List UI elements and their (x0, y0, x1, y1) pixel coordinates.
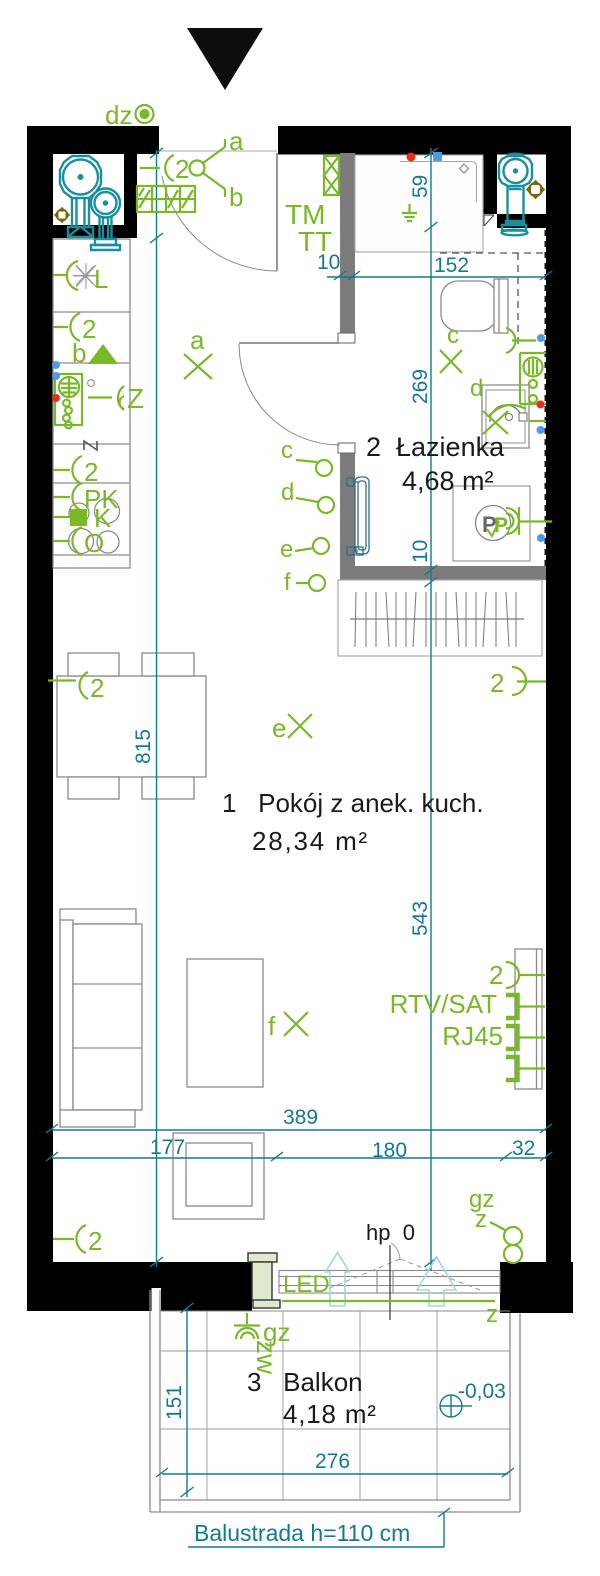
svg-text:180: 180 (372, 1139, 407, 1162)
svg-text:2: 2 (84, 457, 98, 487)
svg-text:543: 543 (409, 901, 432, 936)
svg-text:2: 2 (88, 1226, 102, 1256)
svg-text:2: 2 (489, 960, 503, 990)
svg-text:Z: Z (127, 383, 144, 414)
svg-text:32: 32 (512, 1137, 535, 1160)
svg-text:Balustrada h=110 cm: Balustrada h=110 cm (194, 1520, 410, 1546)
svg-text:RJ45: RJ45 (442, 1021, 503, 1051)
svg-text:d: d (470, 375, 483, 402)
svg-text:177: 177 (150, 1136, 185, 1159)
svg-text:f: f (268, 1011, 276, 1041)
svg-text:2 Łazienka: 2 Łazienka (366, 432, 505, 462)
svg-text:59: 59 (409, 175, 432, 198)
svg-text:hp 0: hp 0 (366, 1220, 415, 1245)
svg-text:151: 151 (163, 1385, 186, 1420)
svg-text:269: 269 (409, 369, 432, 404)
svg-text:f: f (284, 569, 291, 596)
svg-text:z: z (486, 1301, 498, 1328)
svg-text:O: O (84, 528, 104, 558)
svg-text:10: 10 (409, 540, 432, 563)
svg-text:e: e (272, 713, 286, 743)
svg-text:RTV/SAT: RTV/SAT (390, 989, 498, 1019)
svg-text:c: c (281, 437, 293, 464)
svg-text:a: a (190, 325, 205, 355)
svg-text:389: 389 (283, 1106, 318, 1129)
svg-text:dz: dz (105, 100, 132, 130)
svg-text:b: b (229, 182, 243, 212)
svg-text:2: 2 (175, 154, 189, 184)
svg-text:276: 276 (315, 1450, 350, 1473)
svg-text:d: d (281, 479, 294, 506)
svg-text:815: 815 (132, 729, 155, 764)
svg-text:28,34 m²: 28,34 m² (252, 826, 369, 856)
svg-text:TT: TT (298, 226, 332, 257)
svg-text:L: L (94, 264, 108, 294)
svg-text:zw: zw (251, 1340, 282, 1375)
svg-text:2: 2 (490, 668, 504, 698)
svg-text:152: 152 (434, 254, 469, 277)
svg-text:c: c (447, 322, 459, 349)
svg-text:LED: LED (283, 1271, 330, 1298)
svg-text:1 Pokój z anek. kuch.: 1 Pokój z anek. kuch. (222, 788, 484, 818)
svg-text:e: e (280, 536, 293, 563)
svg-text:b: b (72, 338, 86, 368)
svg-text:4,18 m²: 4,18 m² (283, 1399, 377, 1429)
svg-text:4,68 m²: 4,68 m² (402, 466, 494, 496)
svg-text:2: 2 (90, 673, 104, 703)
svg-text:a: a (229, 126, 244, 156)
svg-text:z: z (475, 1206, 487, 1233)
svg-text:-0,03: -0,03 (458, 1380, 506, 1403)
